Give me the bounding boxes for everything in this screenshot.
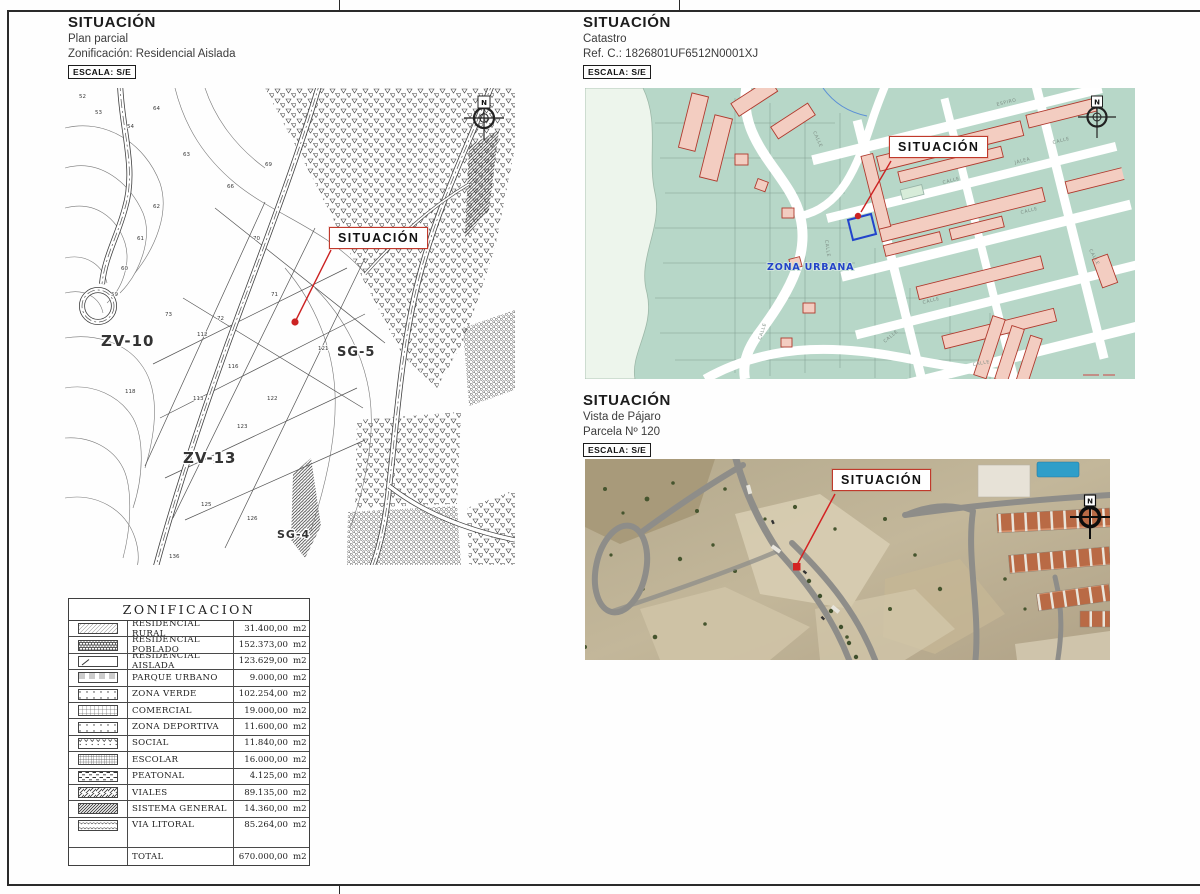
zone-pattern-swatch — [78, 820, 118, 831]
zone-area-unit: m2 — [293, 804, 306, 814]
catastro-subtitle-1: Catastro — [583, 32, 758, 46]
zone-label: PEATONAL — [128, 769, 234, 784]
table-row-blank — [69, 833, 309, 848]
parcel-number: 54 — [127, 124, 134, 130]
zone-area-value: 9.000,00 — [250, 673, 288, 683]
table-row-total: TOTAL 670.000,00 m2 — [69, 848, 309, 865]
zone-label: COMERCIAL — [128, 703, 234, 718]
vista-subtitle-1: Vista de Pájaro — [583, 410, 671, 424]
zone-label: RESIDENCIAL POBLADO — [128, 637, 234, 652]
zone-pattern-swatch — [78, 722, 118, 733]
parcel-number: 63 — [183, 152, 190, 158]
parcel-number: 121 — [318, 346, 329, 352]
situacion-dot — [793, 563, 801, 571]
zone-area-unit: m2 — [293, 640, 306, 650]
zone-area-unit: m2 — [293, 722, 306, 732]
zone-label: VIALES — [128, 785, 234, 800]
zone-pattern-swatch — [78, 623, 118, 634]
zona-urbana-label: ZONA URBANA — [767, 262, 854, 273]
table-row: VIALES 89.135,00 m2 — [69, 785, 309, 801]
zone-area-value: 16.000,00 — [244, 755, 288, 765]
parcel-number: 112 — [197, 332, 208, 338]
fold-mark-top-1 — [339, 0, 340, 10]
zone-label: RESIDENCIAL AISLADA — [128, 654, 234, 669]
zone-area-value: 102.254,00 — [239, 689, 288, 699]
zone-pattern-swatch — [78, 689, 118, 700]
zone-label: SISTEMA GENERAL — [128, 801, 234, 816]
frame-left-border — [7, 10, 9, 885]
parcel-number: 62 — [153, 204, 160, 210]
zone-area-value: 85.264,00 — [244, 820, 288, 830]
zone-pattern-swatch — [78, 672, 118, 683]
parcel-number: 113 — [193, 396, 204, 402]
zone-pattern-swatch — [78, 738, 118, 749]
catastro-map: CALLECALLECALLECALLECALLECALLECALLECALLE… — [585, 88, 1135, 379]
table-row: PARQUE URBANO 9.000,00 m2 — [69, 670, 309, 686]
total-label: TOTAL — [128, 848, 234, 865]
zone-pattern-swatch — [78, 771, 118, 782]
zone-area-value: 123.629,00 — [239, 656, 288, 666]
situacion-leader-plan — [291, 250, 331, 326]
situacion-marker-catastro: SITUACIÓN — [889, 136, 988, 158]
zone-area-value: 89.135,00 — [244, 788, 288, 798]
zone-area-unit: m2 — [293, 788, 306, 798]
fold-mark-top-2 — [679, 0, 680, 10]
parcel-number: 66 — [227, 184, 234, 190]
plan-header: SITUACIÓN Plan parcial Zonificación: Res… — [68, 14, 235, 80]
zone-label: RESIDENCIAL RURAL — [128, 621, 234, 636]
situacion-dot — [855, 213, 861, 219]
zone-area-value: 14.360,00 — [244, 804, 288, 814]
zone-pattern-swatch — [78, 640, 118, 651]
table-row: ZONA DEPORTIVA 11.600,00 m2 — [69, 719, 309, 735]
parcel-number: 59 — [111, 292, 118, 298]
parcel-number: 70 — [253, 236, 260, 242]
escala-badge-vista: ESCALA: S/E — [583, 443, 651, 457]
table-row: SISTEMA GENERAL 14.360,00 m2 — [69, 801, 309, 817]
vista-title: SITUACIÓN — [583, 392, 671, 409]
zone-area-value: 152.373,00 — [239, 640, 288, 650]
vista-subtitle-2: Parcela Nº 120 — [583, 425, 671, 439]
escala-badge-catastro: ESCALA: S/E — [583, 65, 651, 79]
parcel-number: 69 — [265, 162, 272, 168]
parcel-number: 125 — [201, 502, 212, 508]
zone-pattern-swatch — [78, 754, 118, 765]
parcel-number: 116 — [228, 364, 239, 370]
zonificacion-rows: RESIDENCIAL RURAL 31.400,00 m2 RESIDENCI… — [69, 621, 309, 833]
parcel-number: 122 — [267, 396, 278, 402]
table-row: ZONA VERDE 102.254,00 m2 — [69, 687, 309, 703]
zone-area-value: 4.125,00 — [250, 771, 288, 781]
parcel-number: 52 — [79, 94, 86, 100]
frame-bottom-border — [7, 884, 1200, 886]
zone-label: ESCOLAR — [128, 752, 234, 767]
plan-sheet: SITUACIÓN Plan parcial Zonificación: Res… — [0, 0, 1200, 894]
zone-area-value: 11.840,00 — [244, 738, 288, 748]
zone-label: ZV-13 — [183, 449, 237, 467]
zone-label: VIA LITORAL — [128, 818, 234, 833]
zone-area-unit: m2 — [293, 738, 306, 748]
svg-text:N: N — [1094, 99, 1100, 107]
frame-top-border — [7, 10, 1200, 12]
zone-area-value: 19.000,00 — [244, 706, 288, 716]
swimming-pool — [1037, 462, 1079, 477]
zone-label: SOCIAL — [128, 736, 234, 751]
zone-label: ZONA VERDE — [128, 687, 234, 702]
escala-badge-plan: ESCALA: S/E — [68, 65, 136, 79]
table-row: ESCOLAR 16.000,00 m2 — [69, 752, 309, 768]
parcel-number: 71 — [271, 292, 278, 298]
zone-area-unit: m2 — [293, 673, 306, 683]
plan-title: SITUACIÓN — [68, 14, 235, 31]
zone-pattern-swatch — [78, 787, 118, 798]
parcel-number: 136 — [169, 554, 180, 560]
zone-pattern-swatch — [78, 803, 118, 814]
table-row: SOCIAL 11.840,00 m2 — [69, 736, 309, 752]
table-row: RESIDENCIAL AISLADA 123.629,00 m2 — [69, 654, 309, 670]
zone-label: PARQUE URBANO — [128, 670, 234, 685]
zone-area-unit: m2 — [293, 624, 306, 634]
zone-area-unit: m2 — [293, 689, 306, 699]
table-row: RESIDENCIAL RURAL 31.400,00 m2 — [69, 621, 309, 637]
zone-area-value: 11.600,00 — [244, 722, 288, 732]
catastro-header: SITUACIÓN Catastro Ref. C.: 1826801UF651… — [583, 14, 758, 80]
zone-label: ZONA DEPORTIVA — [128, 719, 234, 734]
situacion-dot — [291, 318, 298, 325]
parcel-number: 118 — [125, 389, 136, 395]
parcel-number: 73 — [165, 312, 172, 318]
zonificacion-table: ZONIFICACION RESIDENCIAL RURAL 31.400,00… — [68, 598, 310, 866]
table-row: PEATONAL 4.125,00 m2 — [69, 769, 309, 785]
plan-map: 5253546463666970717273596061621121131161… — [65, 88, 515, 565]
table-row: VIA LITORAL 85.264,00 m2 — [69, 818, 309, 833]
zone-area-unit: m2 — [293, 771, 306, 781]
zone-label: SG-5 — [337, 345, 375, 360]
total-value: 670.000,00 — [239, 852, 288, 862]
situacion-marker-aerial: SITUACIÓN — [832, 469, 931, 491]
zonificacion-title: ZONIFICACION — [69, 599, 309, 621]
zone-area-value: 31.400,00 — [244, 624, 288, 634]
svg-text:N: N — [481, 99, 487, 107]
table-row: RESIDENCIAL POBLADO 152.373,00 m2 — [69, 637, 309, 653]
total-unit: m2 — [293, 852, 306, 862]
parcel-number: 123 — [237, 424, 248, 430]
table-row: COMERCIAL 19.000,00 m2 — [69, 703, 309, 719]
parcel-number: 60 — [121, 266, 128, 272]
vista-header: SITUACIÓN Vista de Pájaro Parcela Nº 120… — [583, 392, 671, 458]
zone-area-unit: m2 — [293, 656, 306, 666]
situacion-marker-plan: SITUACIÓN — [329, 227, 428, 249]
parcel-number: 61 — [137, 236, 144, 242]
zone-pattern-swatch — [78, 705, 118, 716]
parcel-number: 126 — [247, 516, 258, 522]
zone-area-unit: m2 — [293, 755, 306, 765]
parcel-number: 64 — [153, 106, 160, 112]
svg-text:N: N — [1087, 498, 1093, 506]
plan-subtitle-1: Plan parcial — [68, 32, 235, 46]
zone-label: SG-4 — [277, 528, 310, 541]
parcel-number: 53 — [95, 110, 102, 116]
plan-subtitle-2: Zonificación: Residencial Aislada — [68, 47, 235, 61]
parcel-number: 72 — [217, 316, 224, 322]
fold-mark-bottom-1 — [339, 885, 340, 894]
parcel-boundaries — [145, 202, 385, 548]
zone-area-unit: m2 — [293, 820, 306, 830]
zone-area-unit: m2 — [293, 706, 306, 716]
catastro-subtitle-2: Ref. C.: 1826801UF6512N0001XJ — [583, 47, 758, 61]
zone-label: ZV-10 — [101, 332, 155, 350]
catastro-title: SITUACIÓN — [583, 14, 758, 31]
zone-pattern-swatch — [78, 656, 118, 667]
